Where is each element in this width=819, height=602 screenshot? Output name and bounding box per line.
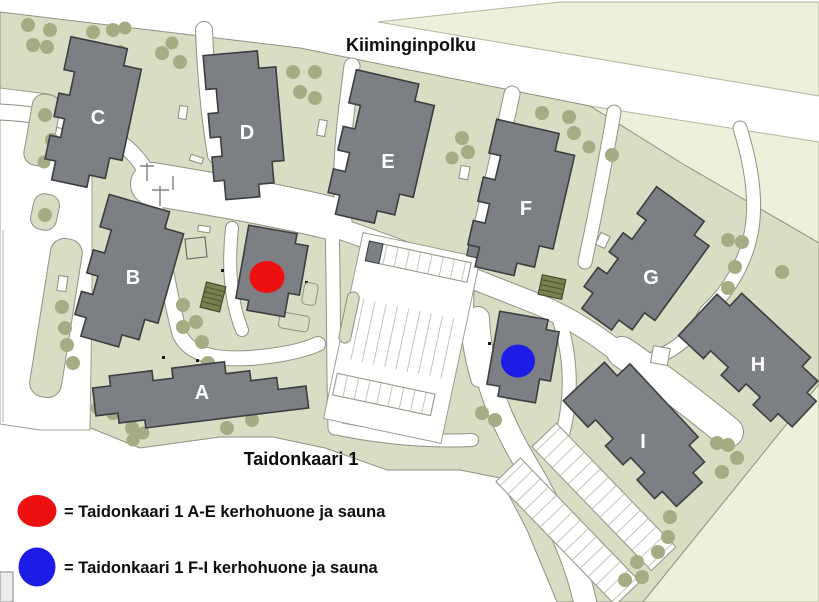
- address-label: Taidonkaari 1: [244, 449, 359, 469]
- legend-blue-icon: [19, 548, 56, 587]
- site-map: A B C D E F G H I Kiiminginpolku Taidonk…: [0, 0, 819, 602]
- legend-item-label: = Taidonkaari 1 A-E kerhohuone ja sauna: [64, 503, 386, 521]
- tree-icon: [721, 438, 735, 452]
- building-a-label: A: [195, 382, 209, 404]
- tree-icon: [119, 22, 132, 35]
- legend-red-icon: [18, 495, 57, 527]
- tree-icon: [40, 40, 54, 54]
- tree-icon: [55, 300, 69, 314]
- tree-icon: [583, 141, 596, 154]
- sign-marker: [57, 276, 68, 292]
- tree-icon: [189, 315, 203, 329]
- map-fragment-bottom-left: [0, 572, 13, 602]
- waste-shelter-icon: [538, 275, 566, 300]
- tree-icon: [605, 148, 619, 162]
- tree-icon: [488, 413, 502, 427]
- tree-icon: [173, 55, 187, 69]
- tree-icon: [661, 530, 675, 544]
- building-b-label: B: [126, 267, 140, 289]
- tree-icon: [38, 208, 52, 222]
- tree-icon: [721, 281, 735, 295]
- tree-icon: [155, 46, 169, 60]
- building-e-label: E: [381, 151, 394, 173]
- tree-icon: [567, 126, 581, 140]
- red-marker-icon: [250, 261, 285, 293]
- tree-icon: [651, 545, 665, 559]
- building-f-label: F: [520, 198, 532, 220]
- tree-icon: [21, 18, 35, 32]
- tree-icon: [195, 335, 209, 349]
- tree-icon: [293, 85, 307, 99]
- tree-icon: [43, 23, 57, 37]
- tree-icon: [286, 65, 300, 79]
- tree-icon: [446, 152, 459, 165]
- tree-icon: [635, 570, 649, 584]
- tree-icon: [562, 110, 576, 124]
- tree-icon: [58, 321, 72, 335]
- tree-icon: [176, 298, 190, 312]
- building-g-label: G: [643, 267, 659, 289]
- tree-icon: [735, 235, 749, 249]
- tree-icon: [106, 23, 120, 37]
- tree-icon: [461, 145, 475, 159]
- tree-icon: [630, 555, 644, 569]
- utility-box: [651, 346, 671, 366]
- tree-icon: [26, 38, 40, 52]
- building-i-label: I: [640, 431, 646, 453]
- tree-icon: [730, 451, 744, 465]
- building-h-label: H: [751, 354, 765, 376]
- sign-marker: [459, 165, 470, 179]
- tree-icon: [618, 573, 632, 587]
- tree-icon: [176, 320, 190, 334]
- bench-icon: [198, 225, 211, 233]
- legend-item-label: = Taidonkaari 1 F-I kerhohuone ja sauna: [64, 559, 379, 577]
- building-c-label: C: [91, 107, 105, 129]
- map-canvas: A B C D E F G H I Kiiminginpolku Taidonk…: [0, 0, 819, 602]
- tree-icon: [220, 421, 234, 435]
- tree-icon: [308, 65, 322, 79]
- tree-icon: [475, 406, 489, 420]
- building-d-label: D: [240, 122, 254, 144]
- tree-icon: [166, 37, 179, 50]
- tree-icon: [663, 510, 677, 524]
- tree-icon: [38, 108, 52, 122]
- tree-icon: [455, 131, 469, 145]
- tree-icon: [715, 465, 729, 479]
- tree-icon: [721, 233, 735, 247]
- tree-icon: [775, 265, 789, 279]
- tree-icon: [127, 434, 140, 447]
- blue-marker-icon: [501, 345, 535, 378]
- tree-icon: [728, 260, 742, 274]
- tree-icon: [535, 106, 549, 120]
- sign-marker: [178, 106, 188, 120]
- tree-icon: [308, 91, 322, 105]
- tree-icon: [60, 338, 74, 352]
- tree-icon: [66, 356, 80, 370]
- tree-icon: [86, 25, 100, 39]
- street-name-label: Kiiminginpolku: [346, 35, 476, 55]
